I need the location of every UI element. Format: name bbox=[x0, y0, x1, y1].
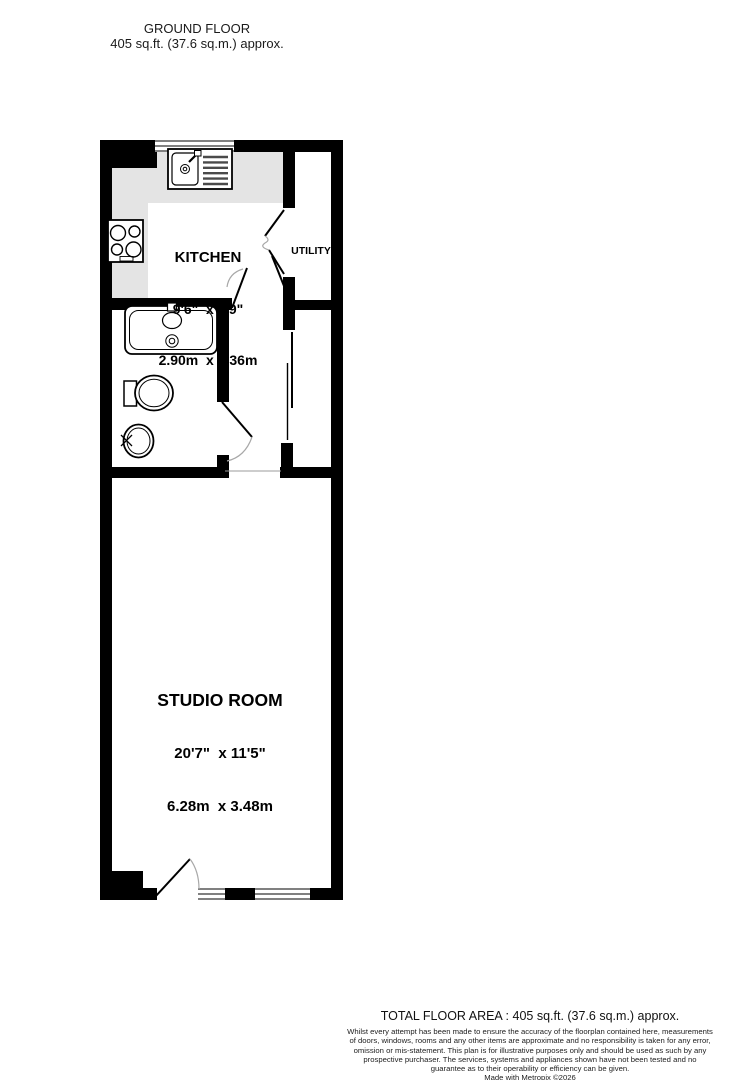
kitchen-imperial-dims: 9'6" x 7'9" bbox=[133, 302, 283, 317]
window-studio-left bbox=[198, 888, 225, 900]
cupboard-area bbox=[295, 310, 331, 463]
kitchen-name: KITCHEN bbox=[133, 250, 283, 266]
room-label-studio: STUDIO ROOM 20'7" x 11'5" 6.28m x 3.48m bbox=[135, 655, 305, 851]
studio-imperial-dims: 20'7" x 11'5" bbox=[135, 746, 305, 763]
kitchen-metric-dims: 2.90m x 2.36m bbox=[133, 353, 283, 368]
studio-name: STUDIO ROOM bbox=[135, 691, 305, 710]
studio-metric-dims: 6.28m x 3.48m bbox=[135, 799, 305, 816]
wall-bottom-left bbox=[100, 888, 157, 900]
utility-name: UTILITY bbox=[280, 245, 342, 257]
window-studio-right bbox=[255, 888, 310, 900]
wall-left bbox=[100, 152, 112, 900]
room-label-utility: UTILITY bbox=[280, 221, 342, 281]
wall-top-right bbox=[234, 140, 343, 152]
wall-bottom-mid bbox=[225, 888, 255, 900]
wall-studio-top-left bbox=[100, 467, 225, 478]
metropix-credit: Made with Metropix ©2026 bbox=[346, 1073, 714, 1080]
sliding-door-cupboard bbox=[288, 332, 293, 440]
total-floor-area: TOTAL FLOOR AREA : 405 sq.ft. (37.6 sq.m… bbox=[346, 1009, 714, 1024]
floorplan-page: GROUND FLOOR 405 sq.ft. (37.6 sq.m.) app… bbox=[0, 0, 741, 1080]
plan-footer: TOTAL FLOOR AREA : 405 sq.ft. (37.6 sq.m… bbox=[346, 1009, 714, 1080]
wall-top-left bbox=[100, 140, 155, 152]
wall-bottom-right bbox=[310, 888, 343, 900]
wall-cupboard-stub bbox=[281, 443, 293, 478]
wall-kitchen-utility-upper bbox=[283, 152, 295, 208]
floorplan-drawing bbox=[0, 0, 741, 1080]
wall-utility-bottom bbox=[283, 300, 343, 310]
disclaimer-text: Whilst every attempt has been made to en… bbox=[346, 1027, 714, 1073]
room-label-kitchen: KITCHEN 9'6" x 7'9" 2.90m x 2.36m bbox=[133, 214, 283, 403]
